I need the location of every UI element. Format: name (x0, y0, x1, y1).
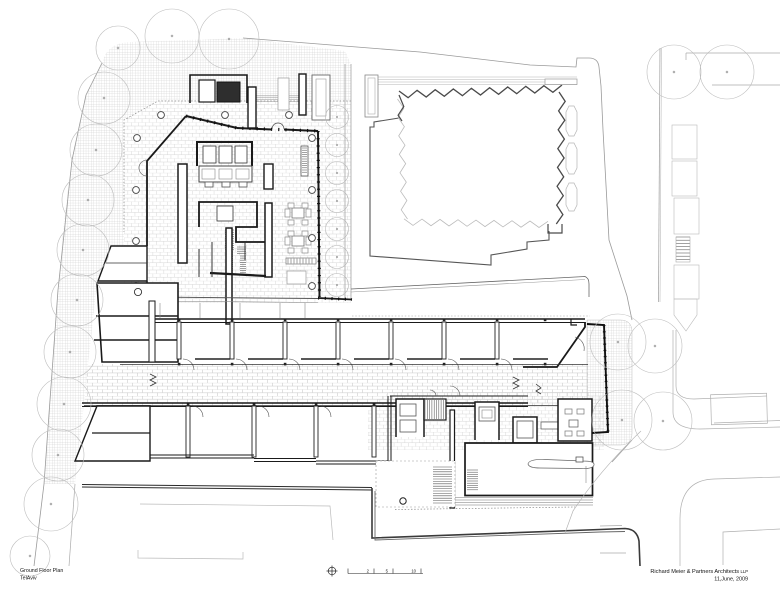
svg-text:Richard Meier & Partners Archi: Richard Meier & Partners Architects LLP (650, 569, 748, 575)
svg-text:11,June, 2009: 11,June, 2009 (714, 577, 748, 583)
svg-text:10: 10 (411, 569, 416, 574)
svg-text:TelAviv: TelAviv (20, 576, 37, 582)
svg-text:Ground Floor Plan: Ground Floor Plan (20, 568, 63, 574)
